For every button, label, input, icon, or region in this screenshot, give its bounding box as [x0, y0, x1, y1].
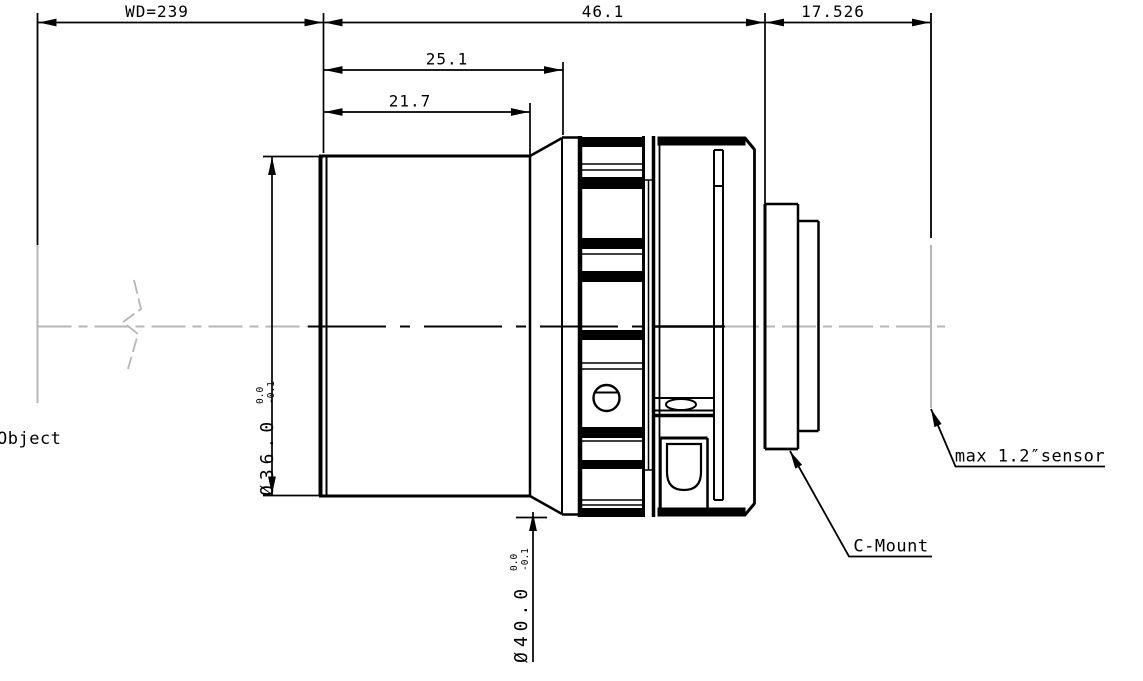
dim-arrowhead — [268, 157, 276, 175]
band — [579, 137, 645, 147]
dim-arrowhead — [325, 108, 343, 116]
band — [579, 508, 645, 517]
dim-front-diameter-tol-upper: 0.0 — [255, 387, 266, 404]
chamfer-bottom — [530, 496, 562, 514]
housing-bottom-cap — [658, 508, 746, 517]
dim-ring-diameter-value: Ø40.0 — [511, 584, 532, 663]
dim-arrowhead — [529, 513, 537, 531]
sensor-callout: max 1.2″sensor — [927, 407, 1105, 466]
band — [579, 177, 645, 189]
dim-arrowhead — [746, 19, 764, 27]
band — [579, 427, 645, 438]
dim-arrowhead — [39, 19, 57, 27]
dim-arrowhead — [325, 19, 343, 27]
dim-arrowhead — [912, 19, 930, 27]
slot-inner — [667, 444, 701, 490]
lens-technical-drawing: WD=239 46.1 17.526 25.1 21.7 Ø36.0 0.0 -… — [0, 0, 1143, 681]
lock-screw — [666, 399, 696, 410]
dim-arrowhead — [766, 19, 784, 27]
dim-front-barrel: 21.7 — [389, 92, 432, 111]
dim-front-diameter-value: Ø36.0 — [257, 417, 278, 496]
dim-arrowhead — [305, 19, 323, 27]
band — [579, 271, 645, 282]
band — [579, 238, 645, 249]
sensor-label: max 1.2″sensor — [955, 447, 1105, 467]
dim-ring-diameter-tol-lower: -0.1 — [520, 548, 531, 571]
band — [579, 460, 645, 469]
centerline-break-symbol — [123, 280, 141, 369]
dim-ring-diameter-tol-upper: 0.0 — [509, 554, 520, 571]
dim-barrel-to-flange: 46.1 — [582, 2, 625, 21]
band — [579, 330, 645, 340]
dim-arrowhead — [544, 66, 562, 74]
housing-chamfer-bottom — [745, 504, 755, 516]
leader-arrowhead — [787, 449, 803, 469]
dim-flange-focal-distance: 17.526 — [801, 2, 865, 21]
chamfer-top — [530, 138, 562, 156]
dim-front-section: 25.1 — [426, 50, 469, 69]
leader-arrowhead — [927, 407, 941, 427]
housing-chamfer-top — [745, 138, 755, 150]
object-label: Object — [0, 429, 61, 449]
dim-working-distance: WD=239 — [125, 2, 189, 21]
c-mount-callout: C-Mount — [787, 449, 932, 556]
annotations: Object C-Mount max 1.2″sensor — [0, 407, 1105, 556]
dim-front-diameter: Ø36.0 0.0 -0.1 — [255, 381, 278, 496]
dim-front-diameter-tol-lower: -0.1 — [266, 381, 277, 404]
dim-arrowhead — [325, 66, 343, 74]
housing-top-cap — [658, 137, 746, 146]
dim-arrowhead — [511, 108, 529, 116]
set-screw — [594, 385, 620, 411]
dim-arrowheads — [39, 19, 931, 531]
c-mount-label: C-Mount — [853, 537, 928, 557]
lens-technical-drawing-page: WD=239 46.1 17.526 25.1 21.7 Ø36.0 0.0 -… — [0, 0, 1143, 681]
dim-ring-diameter: Ø40.0 0.0 -0.1 — [509, 548, 532, 663]
